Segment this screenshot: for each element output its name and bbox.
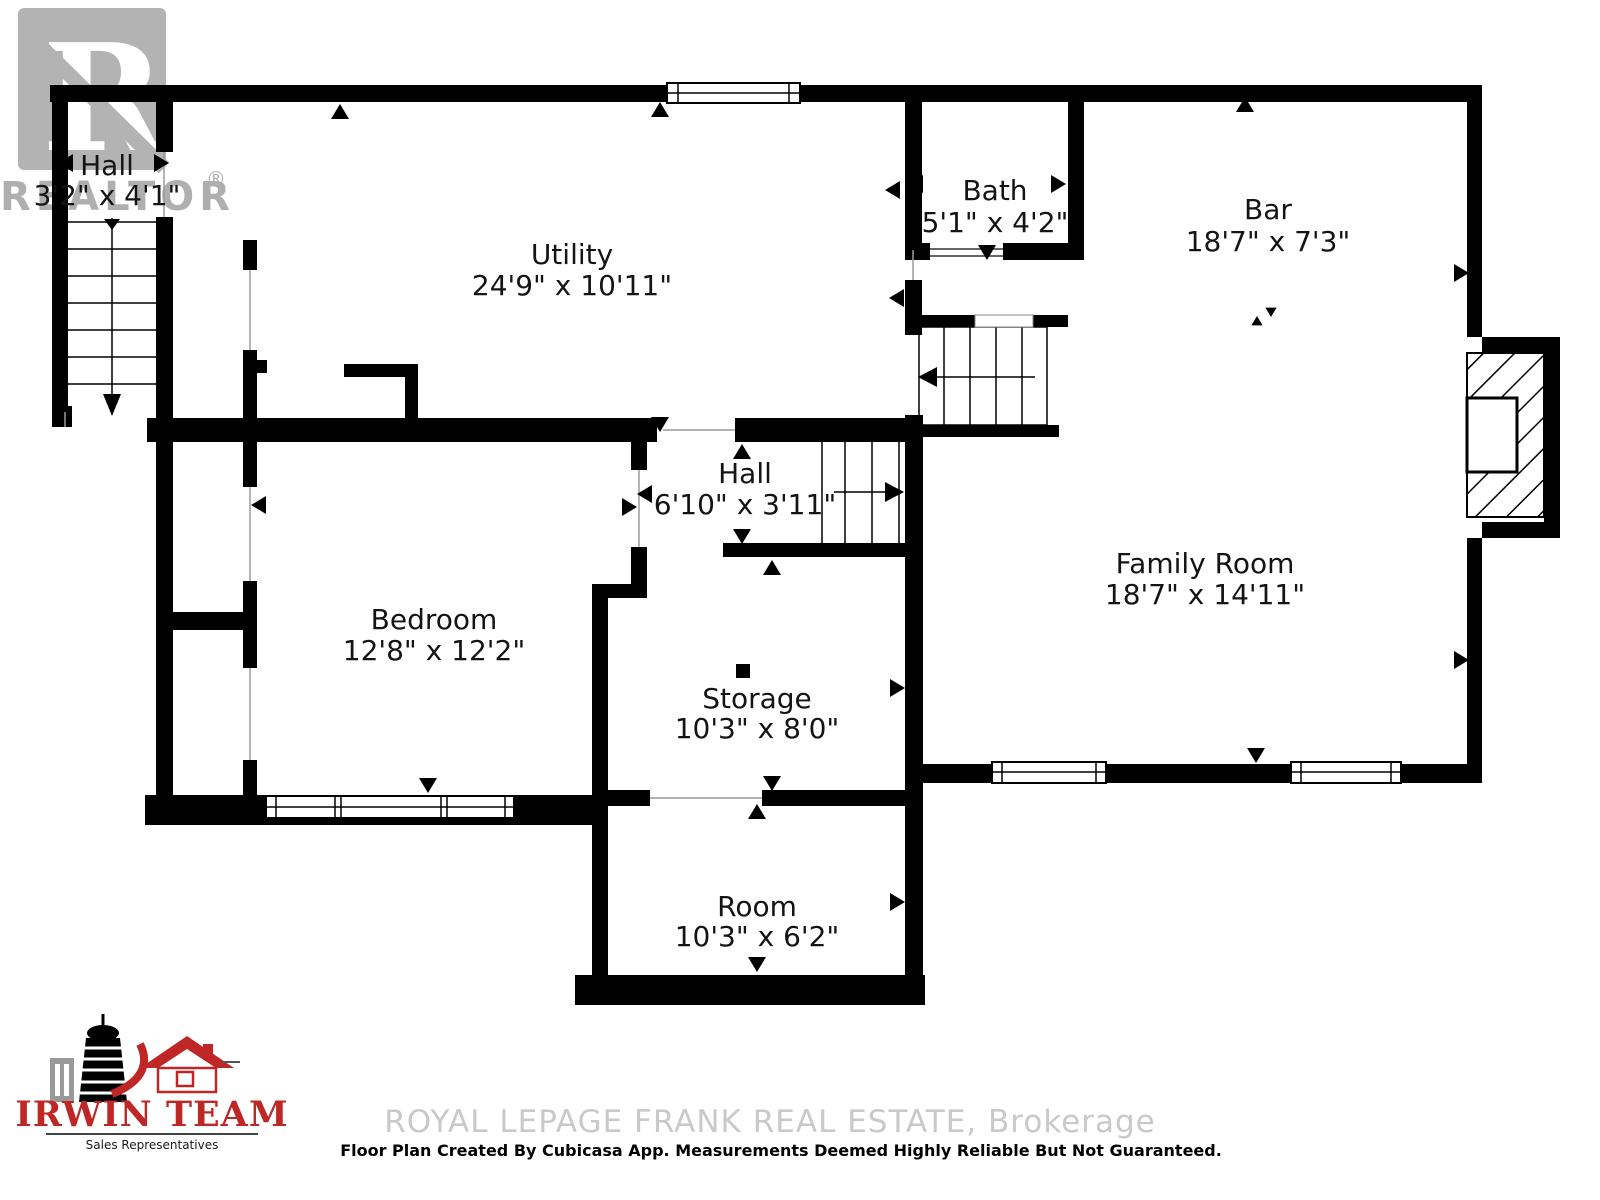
room-label-hall-upper: Hall: [80, 149, 134, 182]
floor-plan-canvas: R REALTOR ®: [0, 0, 1600, 1200]
window-family-left: [992, 762, 1106, 783]
room-label-storage: Storage: [702, 682, 812, 715]
disclaimer-text: Floor Plan Created By Cubicasa App. Meas…: [340, 1141, 1222, 1160]
room-dims-family-room: 18'7" x 14'11": [1105, 578, 1305, 611]
post-marker: [736, 664, 750, 678]
room-dims-room: 10'3" x 6'2": [675, 920, 840, 953]
background: [0, 0, 1600, 1200]
room-label-bedroom: Bedroom: [371, 603, 498, 636]
floor-plan-page: R REALTOR ®: [0, 0, 1600, 1200]
room-label-room: Room: [717, 890, 797, 923]
window-bedroom: [266, 796, 514, 818]
realtor-registered-icon: ®: [206, 167, 226, 191]
room-dims-hall-middle: 6'10" x 3'11": [654, 488, 836, 521]
room-dims-utility: 24'9" x 10'11": [472, 269, 672, 302]
team-name: IRWIN TEAM: [15, 1094, 288, 1135]
room-dims-hall-upper: 3'2" x 4'1": [34, 179, 181, 212]
room-label-family-room: Family Room: [1116, 547, 1295, 580]
room-dims-bar: 18'7" x 7'3": [1186, 225, 1351, 258]
room-dims-bath: 5'1" x 4'2": [922, 206, 1069, 239]
room-dims-storage: 10'3" x 8'0": [675, 712, 840, 745]
room-label-hall-middle: Hall: [718, 457, 772, 490]
room-dims-bedroom: 12'8" x 12'2": [343, 634, 525, 667]
room-label-bath: Bath: [962, 174, 1027, 207]
window-family-right: [1291, 762, 1401, 783]
window-top: [667, 83, 800, 103]
fireplace: [1467, 353, 1544, 517]
team-subtitle: Sales Representatives: [86, 1138, 219, 1152]
room-label-bar: Bar: [1244, 193, 1292, 226]
room-label-utility: Utility: [531, 238, 613, 271]
brokerage-watermark: ROYAL LEPAGE FRANK REAL ESTATE, Brokerag…: [384, 1104, 1155, 1140]
